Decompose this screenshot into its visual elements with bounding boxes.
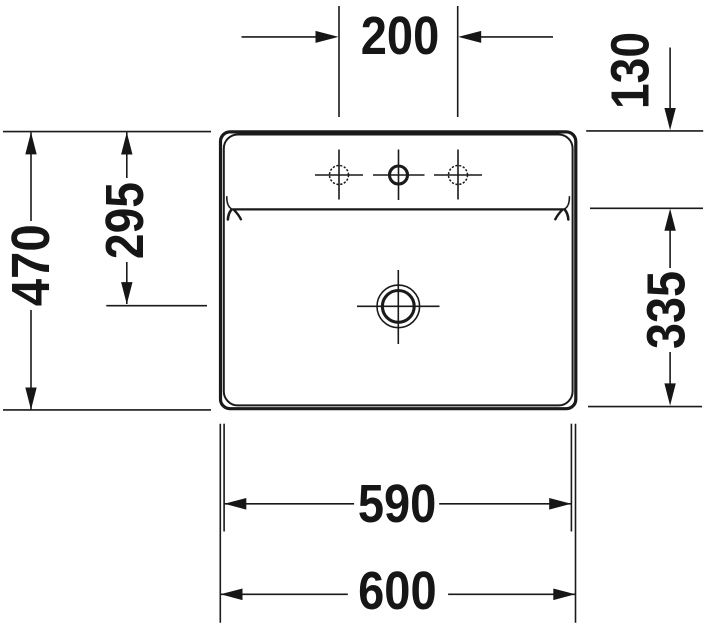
svg-text:470: 470: [1, 224, 61, 306]
svg-text:130: 130: [601, 32, 661, 109]
svg-text:335: 335: [636, 271, 696, 349]
svg-text:600: 600: [358, 561, 437, 621]
svg-text:200: 200: [361, 6, 440, 66]
svg-text:590: 590: [358, 474, 437, 534]
svg-text:295: 295: [95, 182, 155, 259]
